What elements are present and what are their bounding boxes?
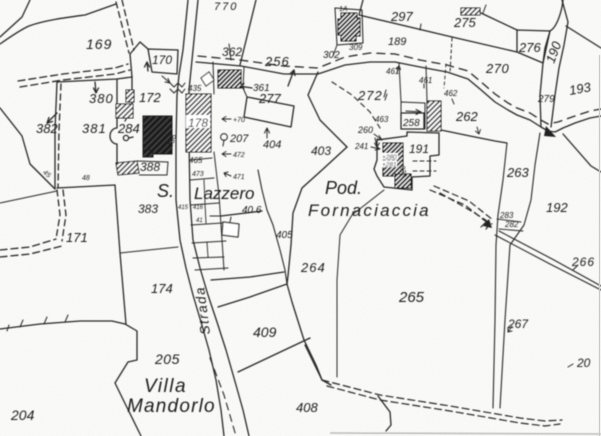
svg-text:20: 20 (576, 356, 591, 370)
svg-text:282: 282 (504, 220, 519, 229)
svg-text:266: 266 (571, 255, 595, 269)
svg-text:382: 382 (36, 121, 58, 136)
svg-text:Pod.: Pod. (325, 178, 362, 198)
svg-text:302: 302 (323, 50, 340, 61)
svg-text:256: 256 (264, 54, 290, 69)
svg-text:267: 267 (507, 317, 529, 331)
svg-text:41: 41 (196, 218, 203, 224)
svg-text:171: 171 (66, 230, 88, 245)
svg-text:265: 265 (398, 289, 425, 306)
svg-text:272: 272 (357, 88, 383, 103)
svg-text:465: 465 (189, 156, 203, 165)
svg-text:+70: +70 (233, 117, 245, 124)
svg-text:169: 169 (86, 36, 112, 52)
svg-text:462: 462 (444, 89, 458, 98)
svg-text:297: 297 (390, 9, 413, 24)
svg-text:192: 192 (546, 200, 568, 215)
svg-text:Fornaciaccia: Fornaciaccia (308, 201, 431, 220)
svg-text:258: 258 (402, 118, 420, 129)
svg-text:362: 362 (222, 45, 242, 59)
svg-text:1A: 1A (339, 6, 348, 13)
svg-text:408: 408 (296, 400, 318, 415)
svg-text:270: 270 (485, 61, 509, 76)
svg-text:262: 262 (455, 109, 478, 124)
svg-text:263: 263 (506, 165, 529, 180)
svg-text:170: 170 (152, 53, 172, 67)
svg-text:435: 435 (188, 84, 202, 93)
svg-text:472: 472 (233, 152, 245, 159)
svg-text:191: 191 (409, 142, 429, 156)
svg-text:416: 416 (193, 205, 204, 211)
svg-text:174: 174 (151, 281, 173, 296)
svg-text:309: 309 (349, 43, 363, 52)
svg-text:388: 388 (140, 160, 160, 174)
svg-text:461: 461 (386, 67, 399, 76)
svg-text:Lazzero: Lazzero (194, 184, 254, 203)
svg-text:403: 403 (311, 144, 331, 158)
svg-text:+280: +280 (382, 154, 397, 161)
svg-text:Mandorlo: Mandorlo (127, 396, 216, 417)
svg-text:48: 48 (82, 175, 90, 182)
svg-text:283: 283 (499, 211, 514, 220)
svg-text:404: 404 (263, 139, 281, 151)
svg-text:172: 172 (139, 90, 161, 105)
svg-text:383: 383 (138, 202, 158, 216)
svg-text:241: 241 (354, 142, 368, 151)
svg-text:260: 260 (357, 125, 373, 135)
svg-text:461: 461 (419, 76, 432, 85)
svg-text:405: 405 (276, 230, 293, 241)
svg-text:264: 264 (300, 260, 326, 275)
svg-text:361: 361 (253, 83, 270, 94)
svg-text:207: 207 (229, 133, 249, 145)
svg-text:276: 276 (518, 40, 541, 55)
svg-text:S.: S. (157, 181, 174, 201)
svg-text:380: 380 (89, 91, 114, 106)
svg-text:284: 284 (117, 121, 140, 136)
svg-text:463: 463 (375, 115, 389, 124)
svg-text:770: 770 (214, 1, 238, 13)
svg-text:409: 409 (253, 324, 277, 340)
svg-text:+281: +281 (382, 162, 397, 169)
svg-text:205: 205 (154, 351, 180, 367)
svg-text:473: 473 (192, 171, 204, 178)
svg-text:204: 204 (10, 407, 35, 423)
svg-text:Villa: Villa (144, 376, 187, 397)
svg-text:275: 275 (453, 15, 476, 30)
svg-text:189: 189 (388, 36, 406, 48)
svg-text:279: 279 (537, 94, 555, 105)
svg-text:471: 471 (233, 174, 245, 181)
svg-text:381: 381 (82, 121, 107, 136)
svg-text:178: 178 (188, 116, 208, 130)
svg-text:415: 415 (178, 205, 189, 211)
svg-text:40 6: 40 6 (242, 205, 262, 216)
